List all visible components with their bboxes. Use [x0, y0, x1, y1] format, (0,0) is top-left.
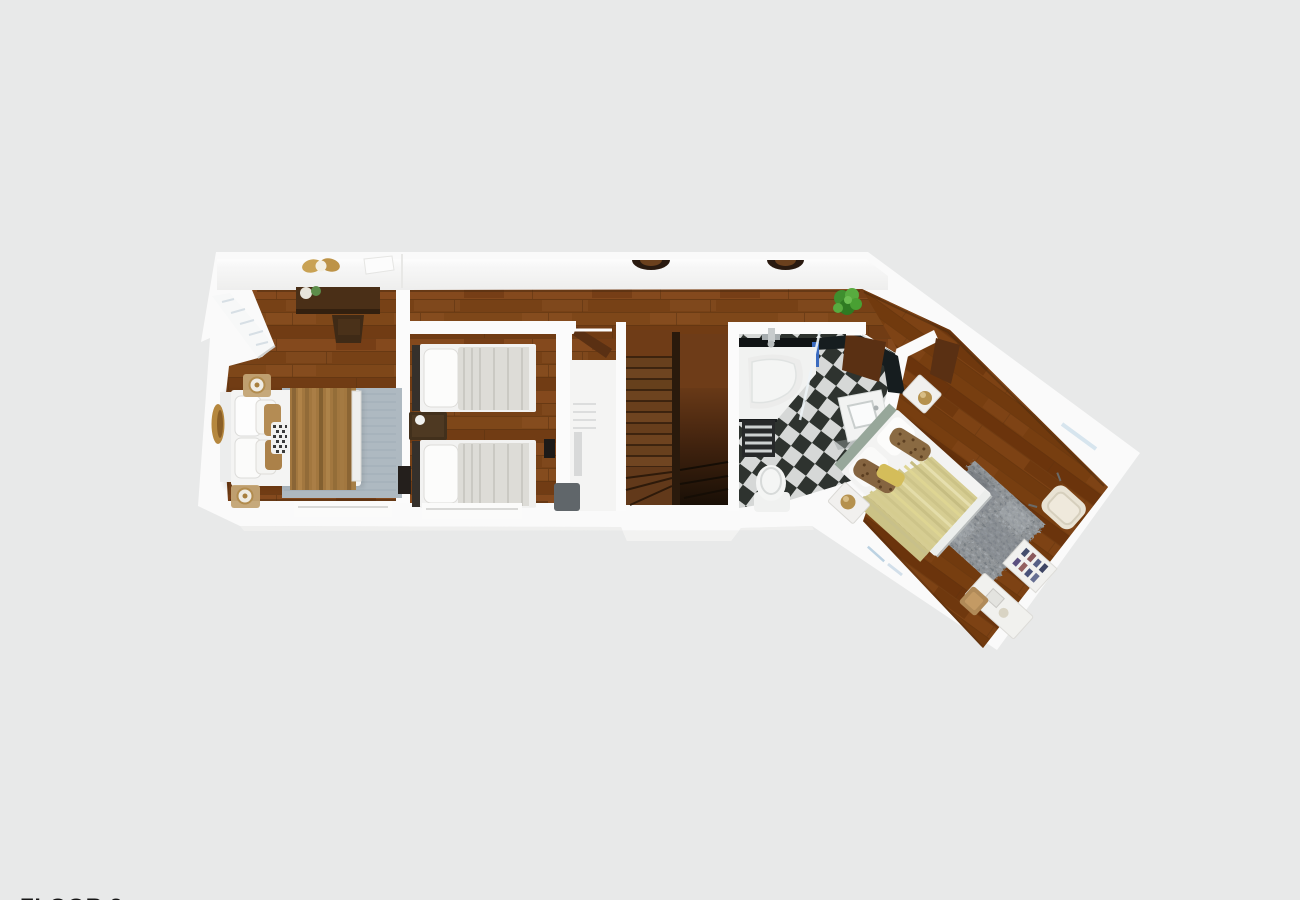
svg-text:FLOOR 2: FLOOR 2 — [20, 894, 123, 900]
